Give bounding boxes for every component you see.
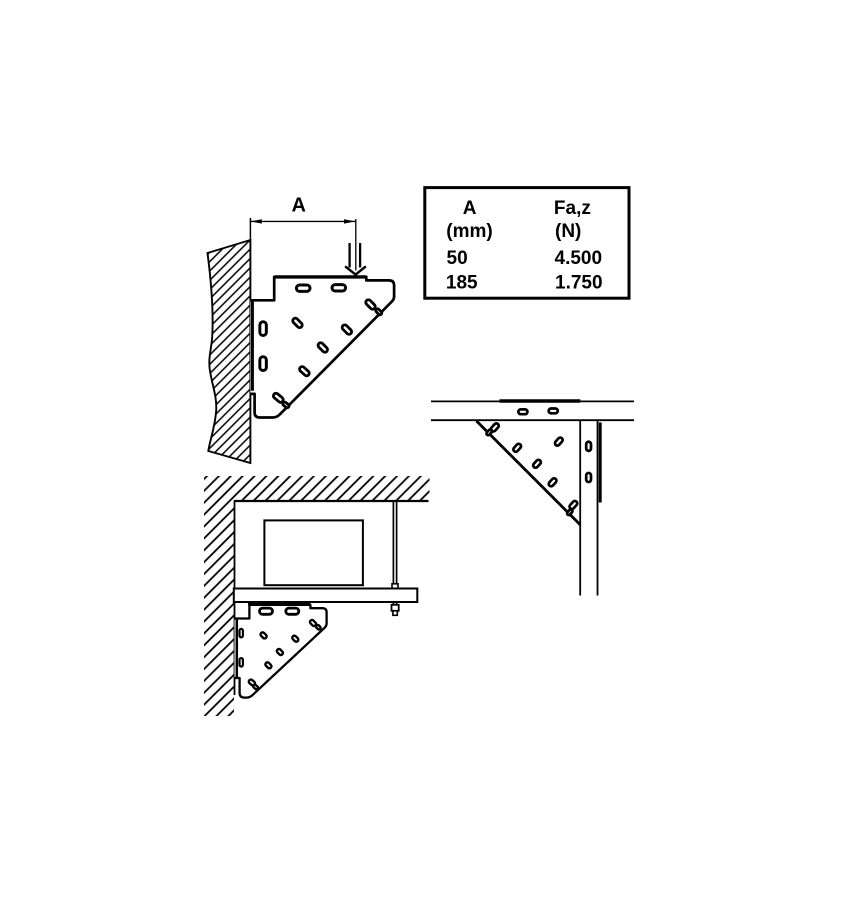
svg-text:50: 50 (447, 248, 468, 269)
svg-text:1.750: 1.750 (555, 272, 603, 293)
svg-text:A: A (291, 195, 305, 217)
svg-text:Fa,z: Fa,z (554, 198, 591, 219)
svg-text:4.500: 4.500 (555, 248, 603, 269)
svg-text:(mm): (mm) (446, 221, 492, 242)
svg-text:(N): (N) (555, 221, 581, 242)
svg-text:185: 185 (446, 272, 478, 293)
svg-text:A: A (463, 198, 477, 219)
